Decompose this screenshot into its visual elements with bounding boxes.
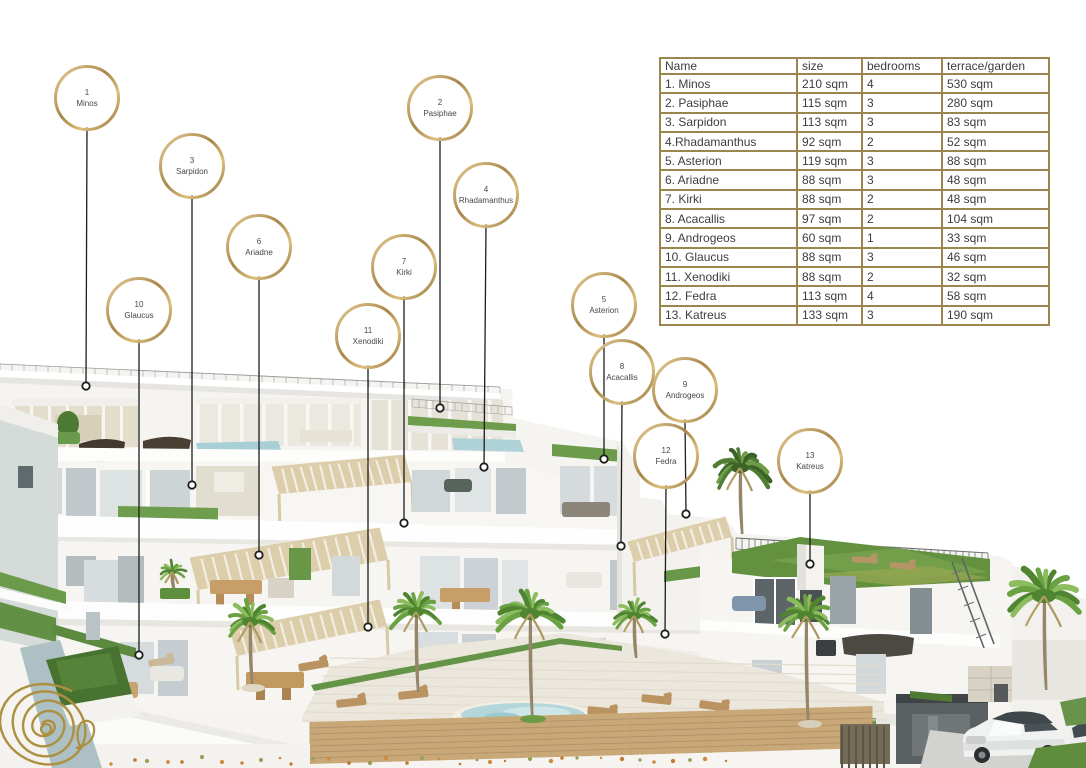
svg-text:Katreus: Katreus (796, 462, 824, 471)
svg-text:Fedra: Fedra (656, 457, 677, 466)
svg-text:6: 6 (257, 237, 262, 246)
svg-text:1: 1 (85, 88, 90, 97)
svg-text:7: 7 (402, 257, 407, 266)
svg-text:Ariadne: Ariadne (245, 248, 273, 257)
svg-text:9: 9 (683, 380, 688, 389)
svg-text:Rhadamanthus: Rhadamanthus (459, 196, 513, 205)
svg-text:Acacallis: Acacallis (606, 373, 638, 382)
svg-text:8: 8 (620, 362, 625, 371)
svg-text:Sarpidon: Sarpidon (176, 167, 208, 176)
svg-text:3: 3 (190, 156, 195, 165)
svg-text:13: 13 (806, 451, 815, 460)
svg-text:Pasiphae: Pasiphae (423, 109, 457, 118)
svg-text:Minos: Minos (76, 99, 97, 108)
svg-text:10: 10 (135, 300, 144, 309)
svg-text:12: 12 (662, 446, 671, 455)
svg-text:2: 2 (438, 98, 443, 107)
svg-text:Kirki: Kirki (396, 268, 412, 277)
svg-text:4: 4 (484, 185, 489, 194)
svg-text:Androgeos: Androgeos (666, 391, 705, 400)
svg-text:5: 5 (602, 295, 607, 304)
svg-text:Glaucus: Glaucus (124, 311, 153, 320)
svg-text:Xenodiki: Xenodiki (353, 337, 384, 346)
svg-text:11: 11 (364, 326, 373, 335)
svg-text:Asterion: Asterion (589, 306, 618, 315)
